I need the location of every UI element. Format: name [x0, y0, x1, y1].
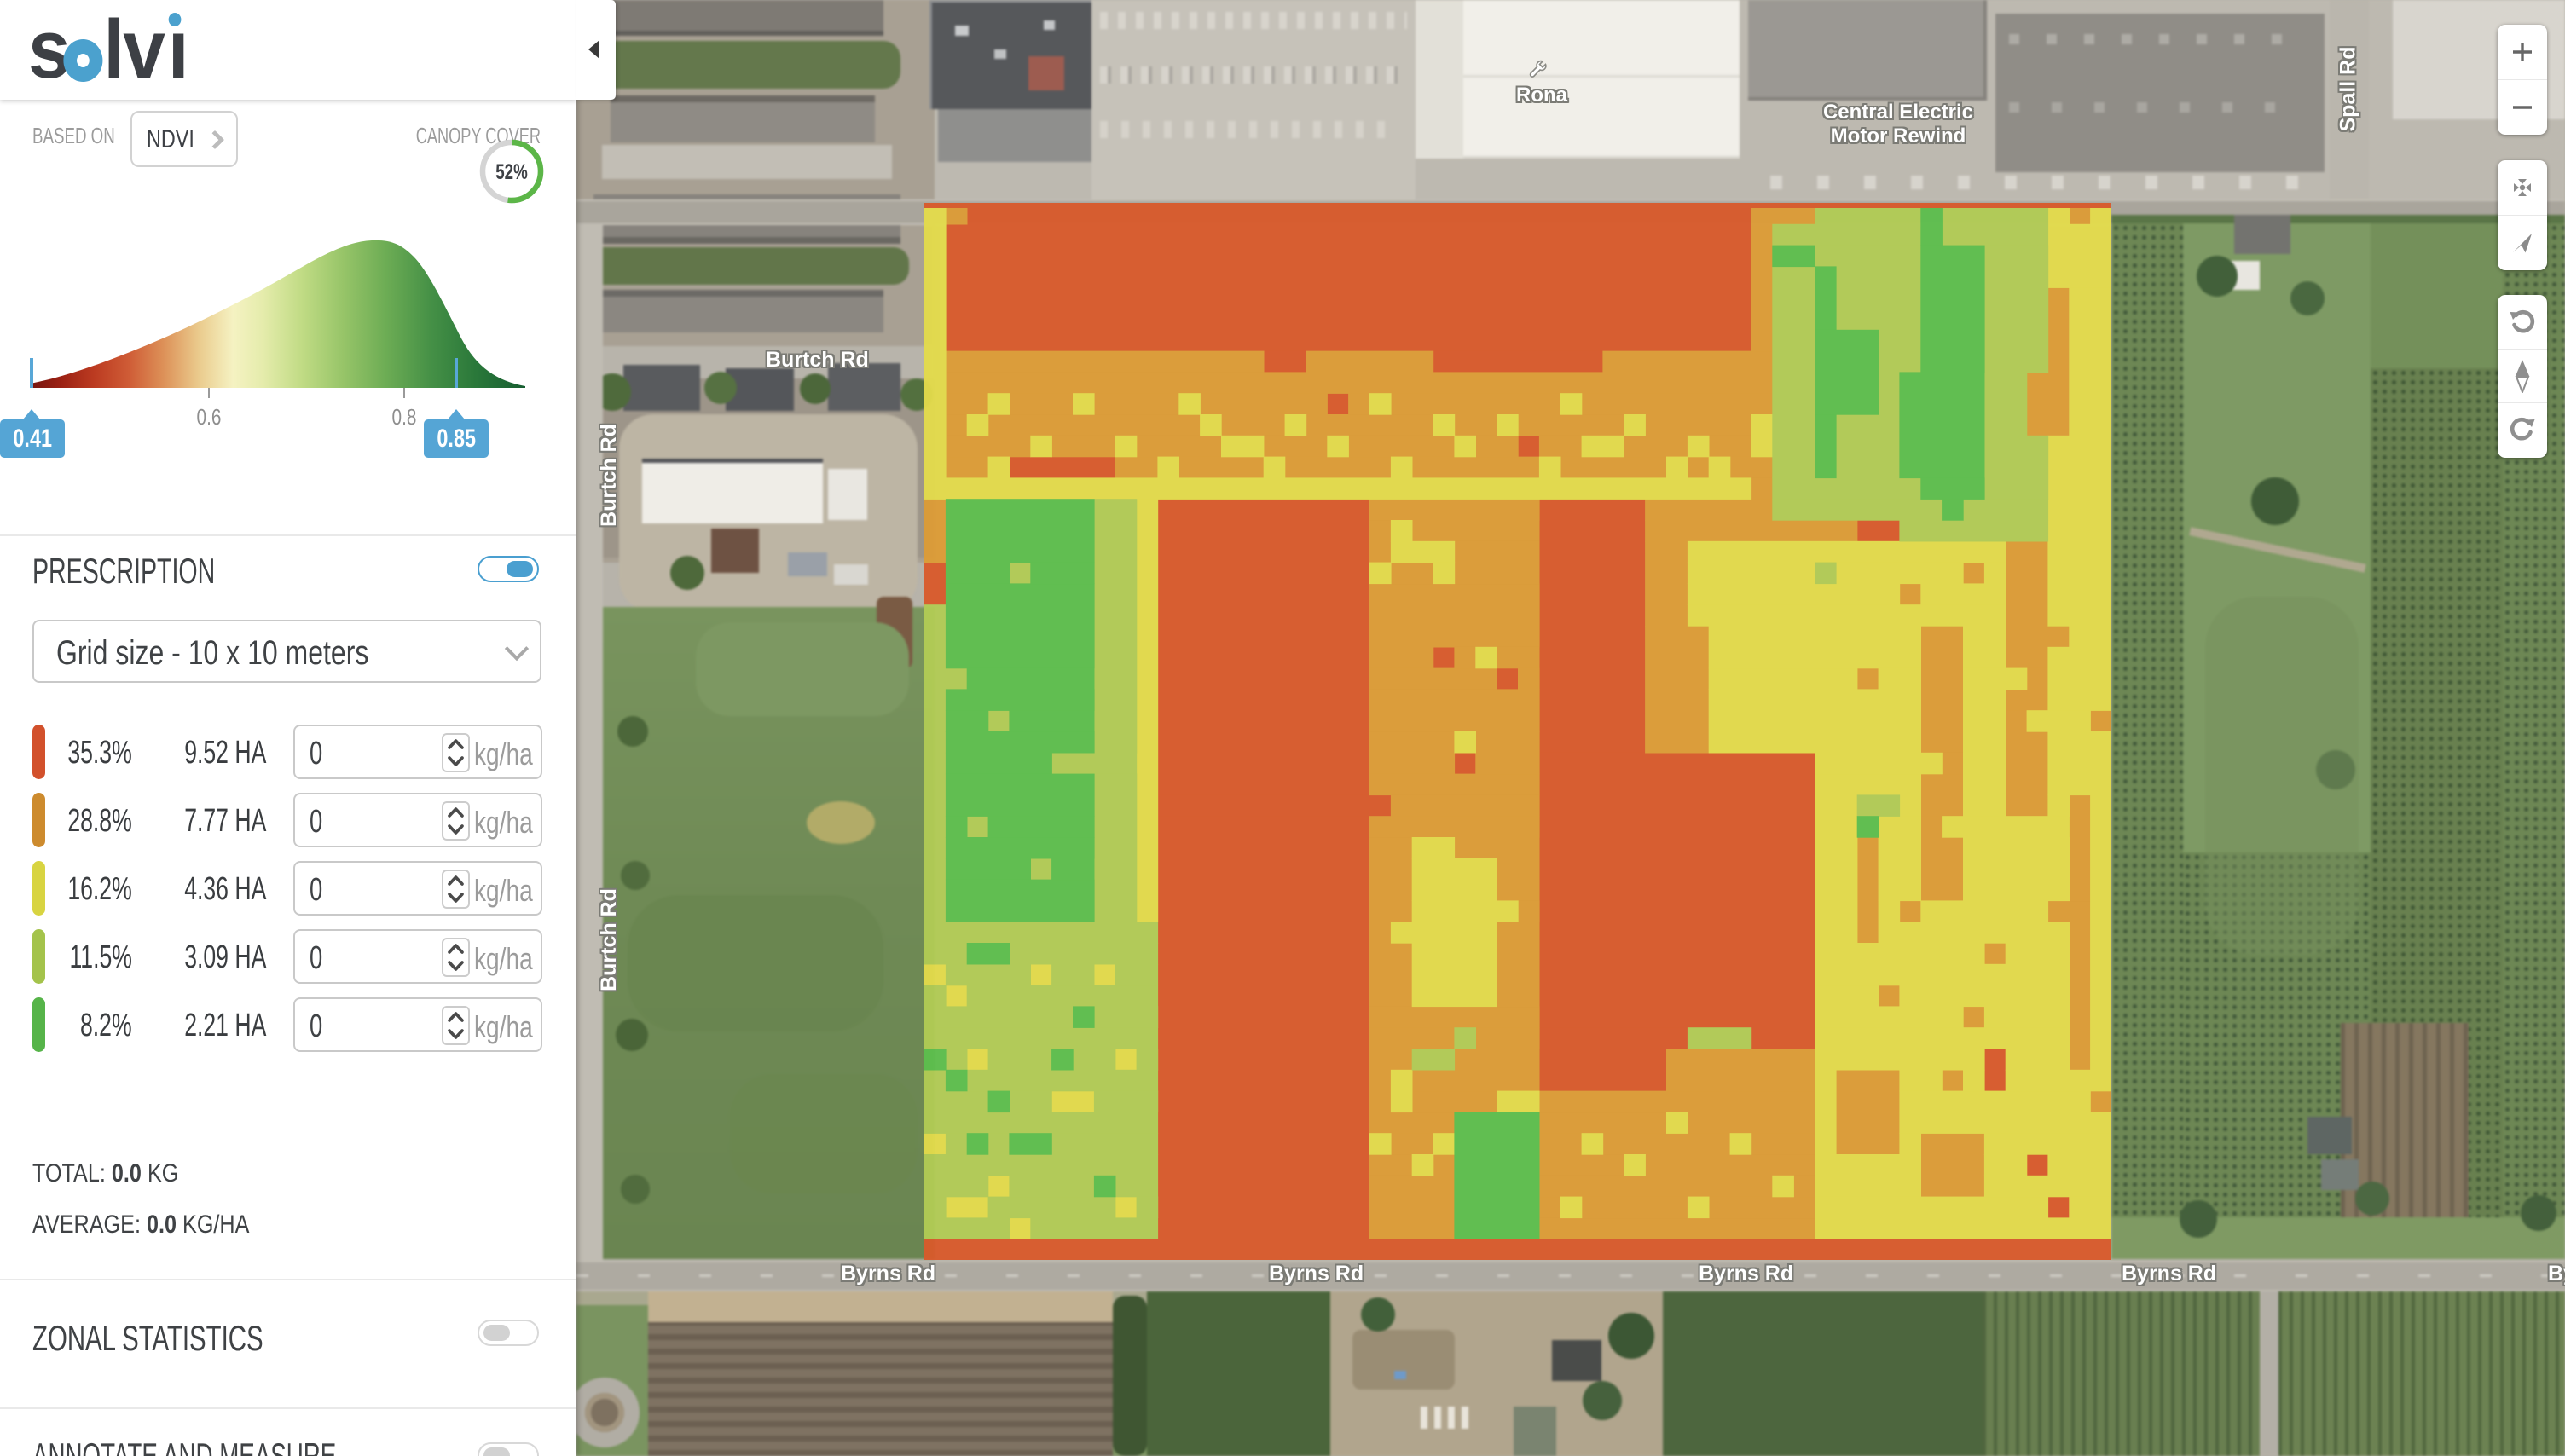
- svg-text:0.8: 0.8: [392, 405, 417, 430]
- svg-text:52%: 52%: [495, 159, 528, 183]
- svg-text:0.6: 0.6: [197, 405, 222, 430]
